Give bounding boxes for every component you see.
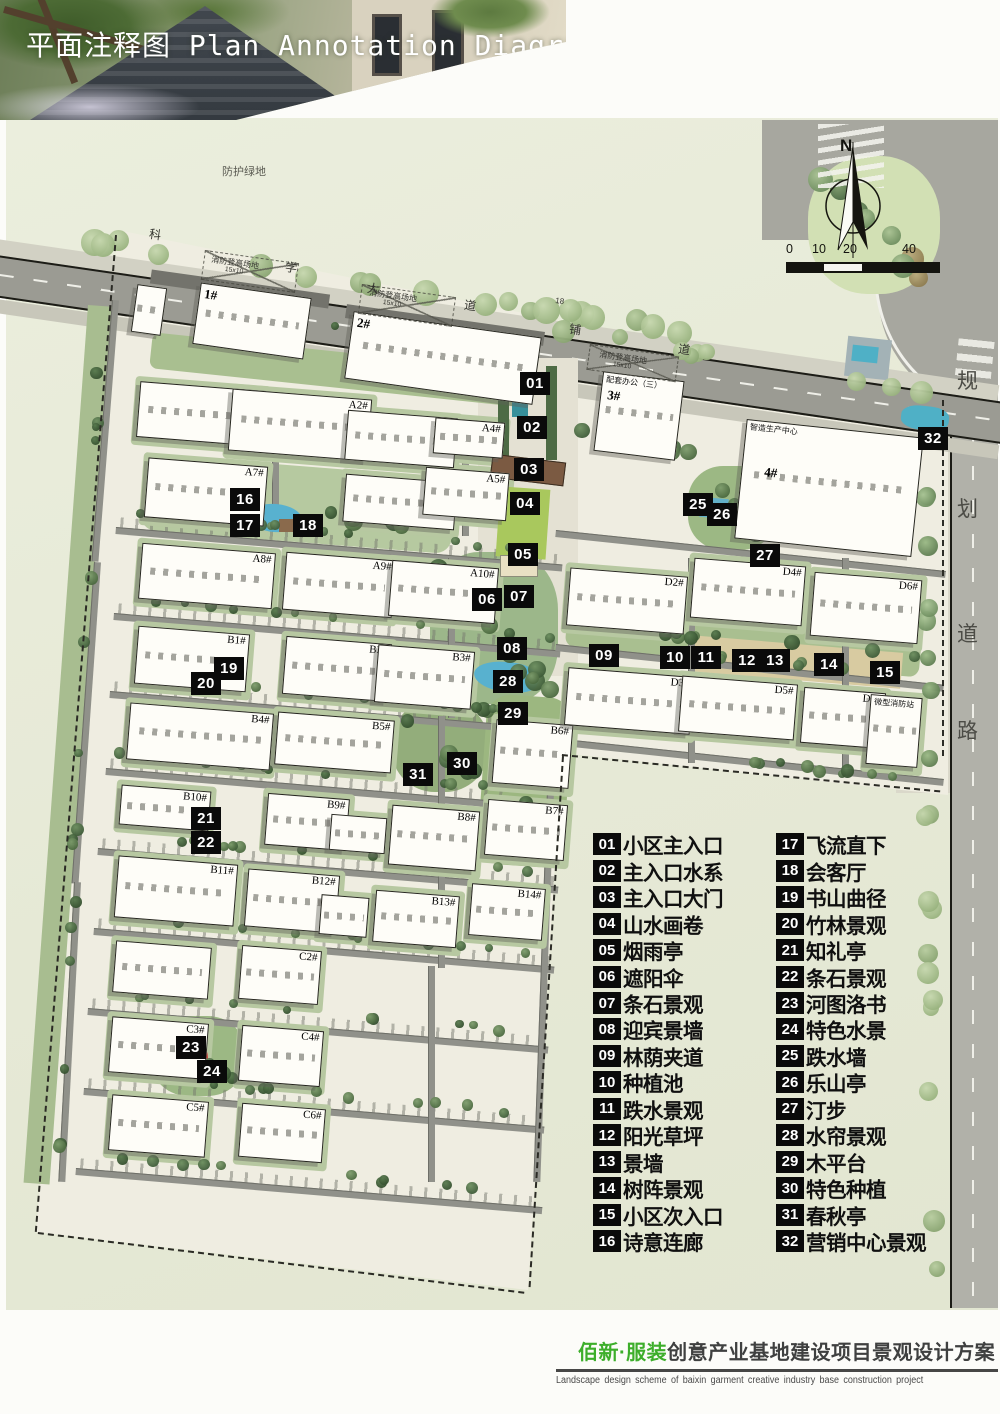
building-3: 配套办公（三）3# <box>593 371 684 460</box>
tree-icon <box>545 633 555 643</box>
planning-road <box>950 385 998 1308</box>
legend-item-15: 15小区次入口 <box>593 1204 748 1226</box>
tree-icon <box>916 808 934 826</box>
legend-number: 11 <box>593 1098 621 1120</box>
legend-number: 20 <box>776 913 804 935</box>
building-B13: B13# <box>372 890 460 948</box>
legend-number: 07 <box>593 992 621 1014</box>
building-windows <box>285 735 384 750</box>
tree-icon <box>114 747 126 759</box>
legend-number: 25 <box>776 1045 804 1067</box>
legend-item-26: 26乐山亭 <box>776 1071 926 1093</box>
site-boundary-east <box>942 400 944 756</box>
legend-item-27: 27汀步 <box>776 1098 926 1120</box>
tree-icon <box>921 750 938 767</box>
building-label: A4# <box>481 422 501 435</box>
page: N 0102040 01小区主入口02主入口水系03主入口大门04山水画卷05烟… <box>0 0 1000 1414</box>
legend-label: 诗意连廊 <box>623 1226 703 1256</box>
legend-number: 17 <box>776 833 804 855</box>
legend-item-10: 10种植池 <box>593 1071 748 1093</box>
building-label: B12# <box>311 875 336 889</box>
building-annex <box>329 814 388 854</box>
building-windows <box>476 906 538 918</box>
tree-icon <box>442 1180 452 1190</box>
tree-icon <box>413 1098 423 1108</box>
tree-icon <box>612 329 629 346</box>
tree-icon <box>379 1175 389 1185</box>
tree-icon <box>270 520 280 530</box>
tree-icon <box>198 1159 210 1171</box>
map-label: 规 <box>957 370 978 394</box>
building-windows <box>431 488 502 501</box>
building-C2: C2# <box>238 945 322 1005</box>
legend-number: 26 <box>776 1071 804 1093</box>
legend-number: 06 <box>593 966 621 988</box>
building-annex: 微型消防站 <box>865 694 922 768</box>
legend-item-30: 30特色种植 <box>776 1177 926 1199</box>
tree-icon <box>228 842 236 850</box>
legend-number: 15 <box>593 1204 621 1226</box>
legend-item-16: 16诗意连廊 <box>593 1230 748 1252</box>
building-label: B8# <box>457 811 476 824</box>
building-B4: B4# <box>126 702 274 770</box>
tree-icon <box>499 1108 509 1118</box>
building-label: 4# <box>763 464 778 481</box>
building-windows <box>121 963 202 976</box>
planning-road-centerline <box>972 398 974 1303</box>
tree-icon <box>574 423 590 439</box>
tree-icon <box>473 542 482 551</box>
legend-number: 10 <box>593 1071 621 1093</box>
legend-column-2: 17飞流直下18会客厅19书山曲径20竹林景观21知礼亭22条石景观23河图洛书… <box>776 833 926 1252</box>
building-windows <box>440 433 499 445</box>
legend-item-32: 32营销中心景观 <box>776 1230 926 1252</box>
building-windows <box>689 700 787 715</box>
legend-item-29: 29木平台 <box>776 1151 926 1173</box>
legend-number: 05 <box>593 939 621 961</box>
building-label: A7# <box>244 466 264 479</box>
legend-item-04: 04山水画卷 <box>593 912 748 934</box>
plan-marker-05: 05 <box>508 543 538 566</box>
building-A5: A5# <box>422 467 510 521</box>
tree-icon <box>469 1021 478 1030</box>
project-title-line: 佰新·服装 创意产业基地建设项目景观设计方案 <box>556 1336 998 1365</box>
tree-icon <box>321 770 329 778</box>
building-windows <box>246 968 313 980</box>
plan-marker-08: 08 <box>497 637 527 660</box>
legend-number: 18 <box>776 860 804 882</box>
tree-icon <box>366 1013 376 1023</box>
building-label: B11# <box>210 864 234 878</box>
tree-icon <box>53 1140 66 1153</box>
building-label: B3# <box>452 651 471 664</box>
tree-icon <box>229 999 238 1008</box>
tree-icon <box>784 635 800 651</box>
building-C6: C6# <box>238 1103 326 1163</box>
building-windows <box>576 692 683 707</box>
building-label: D4# <box>782 566 802 579</box>
plan-marker-27: 27 <box>750 544 780 567</box>
legend-number: 22 <box>776 966 804 988</box>
scale-bar-segments <box>786 262 940 273</box>
map-label: 路 <box>957 720 978 744</box>
plan-marker-18: 18 <box>293 514 323 537</box>
building-label: A8# <box>252 553 272 566</box>
legend-item-12: 12阳光草坪 <box>593 1124 748 1146</box>
tree-icon <box>918 536 939 557</box>
site-plan: N 0102040 01小区主入口02主入口水系03主入口大门04山水画卷05烟… <box>0 0 1000 1414</box>
project-subtitle-en: Landscape design scheme of baixin garmen… <box>556 1375 954 1386</box>
building-B8: B8# <box>388 805 480 872</box>
legend-number: 32 <box>776 1230 804 1252</box>
plan-marker-26: 26 <box>707 503 737 526</box>
tree-icon <box>793 660 804 671</box>
scale-tick: 40 <box>902 242 916 256</box>
plan-marker-14: 14 <box>814 653 844 676</box>
plan-marker-23: 23 <box>176 1036 206 1059</box>
building-label: 2# <box>356 315 371 333</box>
building-windows <box>701 584 796 598</box>
building-C5: C5# <box>108 1094 209 1157</box>
tree-icon <box>70 896 82 908</box>
building-label: B14# <box>517 888 542 902</box>
building-label: B4# <box>251 713 270 726</box>
building-windows <box>241 416 360 432</box>
tree-icon <box>455 1020 464 1029</box>
tree-icon <box>451 537 459 545</box>
tree-icon <box>445 778 457 790</box>
legend-label: 营销中心景观 <box>806 1226 926 1256</box>
building-label: A10# <box>470 567 495 581</box>
legend-item-31: 31春秋亭 <box>776 1204 926 1226</box>
tree-icon <box>311 1086 322 1097</box>
map-label: 道 <box>957 623 978 647</box>
title-divider <box>556 1369 998 1372</box>
building-D4: D4# <box>690 558 806 627</box>
map-label: 18 <box>555 296 565 306</box>
legend-item-23: 23河图洛书 <box>776 992 926 1014</box>
building-windows <box>125 882 227 897</box>
building-B14: B14# <box>468 883 546 941</box>
plan-marker-12: 12 <box>732 649 762 672</box>
building-A8: A8# <box>138 543 276 609</box>
map-label: 科 <box>148 228 162 243</box>
building-windows <box>292 577 385 591</box>
building-windows <box>397 830 471 843</box>
plan-marker-24: 24 <box>197 1060 227 1083</box>
tree-icon <box>474 293 497 316</box>
legend-column-1: 01小区主入口02主入口水系03主入口大门04山水画卷05烟雨亭06遮阳伞07条… <box>593 833 748 1252</box>
tree-icon <box>527 672 539 684</box>
plan-marker-06: 06 <box>472 588 502 611</box>
north-arrow: N <box>816 124 890 260</box>
legend-item-01: 01小区主入口 <box>593 833 748 855</box>
map-label: 划 <box>957 498 978 522</box>
tree-icon <box>801 760 814 773</box>
plan-marker-13: 13 <box>760 649 790 672</box>
tree-icon <box>466 1182 478 1194</box>
building-label: 1# <box>203 286 218 304</box>
building-windows <box>492 823 559 835</box>
legend-number: 08 <box>593 1018 621 1040</box>
legend-number: 21 <box>776 939 804 961</box>
legend-number: 04 <box>593 913 621 935</box>
building-windows <box>335 829 382 840</box>
legend: 01小区主入口02主入口水系03主入口大门04山水画卷05烟雨亭06遮阳伞07条… <box>593 833 926 1252</box>
legend-item-06: 06遮阳伞 <box>593 965 748 987</box>
tree-icon <box>909 651 919 661</box>
tree-icon <box>910 381 933 404</box>
map-label: 道 <box>463 299 477 314</box>
building-label: B1# <box>227 634 246 647</box>
tree-icon <box>923 990 943 1010</box>
project-title-block: 佰新·服装 创意产业基地建设项目景观设计方案 Landscape design … <box>556 1336 998 1386</box>
building-annex <box>319 894 370 938</box>
tree-icon <box>715 483 730 498</box>
legend-number: 16 <box>593 1230 621 1252</box>
tree-icon <box>65 922 77 934</box>
building-windows <box>137 305 162 315</box>
building-label: B7# <box>545 804 564 817</box>
map-label: 铺 <box>568 323 582 338</box>
plan-marker-09: 09 <box>589 644 619 667</box>
plan-marker-16: 16 <box>230 488 260 511</box>
tree-icon <box>499 292 518 311</box>
legend-number: 13 <box>593 1151 621 1173</box>
building-label: C4# <box>301 1031 320 1044</box>
building-label: B10# <box>183 790 208 804</box>
building-label: C5# <box>186 1101 205 1114</box>
legend-number: 12 <box>593 1124 621 1146</box>
plan-marker-28: 28 <box>493 670 523 693</box>
legend-item-25: 25跌水墙 <box>776 1045 926 1067</box>
tree-icon <box>698 344 714 360</box>
building-windows <box>820 599 911 613</box>
plan-marker-31: 31 <box>403 763 433 786</box>
internal-road <box>428 966 435 1182</box>
building-label: A9# <box>372 560 392 573</box>
building-D5: D5# <box>678 676 798 741</box>
plan-marker-04: 04 <box>510 492 540 515</box>
plan-marker-22: 22 <box>191 831 221 854</box>
tree-icon <box>401 714 415 728</box>
tree-icon <box>485 944 494 953</box>
building-windows <box>292 661 382 675</box>
scale-tick: 0 <box>786 242 793 256</box>
tree-icon <box>60 1064 70 1074</box>
legend-item-05: 05烟雨亭 <box>593 939 748 961</box>
legend-number: 28 <box>776 1124 804 1146</box>
building-windows <box>205 310 300 330</box>
scale-tick: 20 <box>843 242 857 256</box>
legend-item-17: 17飞流直下 <box>776 833 926 855</box>
tree-icon <box>271 607 282 618</box>
building-4: 智造生产中心4# <box>734 419 924 557</box>
project-title: 创意产业基地建设项目景观设计方案 <box>667 1336 995 1365</box>
building-D3: D3# <box>564 667 694 735</box>
plan-marker-03: 03 <box>514 458 544 481</box>
legend-number: 03 <box>593 886 621 908</box>
plan-marker-29: 29 <box>498 702 528 725</box>
building-label: B5# <box>372 720 391 733</box>
building-label: 3# <box>606 387 621 404</box>
tree-icon <box>541 681 559 699</box>
tree-icon <box>329 613 338 622</box>
building-label: B6# <box>550 724 569 737</box>
legend-item-09: 09林荫夹道 <box>593 1045 748 1067</box>
tree-icon <box>776 758 785 767</box>
building-windows <box>363 342 524 371</box>
building-windows <box>139 727 261 744</box>
legend-number: 31 <box>776 1204 804 1226</box>
tree-icon <box>216 1161 226 1171</box>
legend-number: 29 <box>776 1151 804 1173</box>
building-windows <box>605 406 674 421</box>
tree-icon <box>580 305 605 330</box>
building-label: A5# <box>486 473 506 486</box>
brand-name: 佰新·服装 <box>578 1336 667 1365</box>
tree-icon <box>344 529 353 538</box>
plan-marker-17: 17 <box>230 514 260 537</box>
building-windows <box>384 669 466 682</box>
legend-item-03: 03主入口大门 <box>593 886 748 908</box>
building-windows <box>150 567 264 583</box>
plan-marker-20: 20 <box>191 672 221 695</box>
building-windows <box>253 893 331 906</box>
legend-number: 02 <box>593 860 621 882</box>
scale-bar: 0102040 <box>786 242 956 288</box>
map-label: 防护绿地 <box>222 166 266 179</box>
building-A4: A4# <box>433 417 506 458</box>
plan-marker-02: 02 <box>517 416 547 439</box>
plan-marker-01: 01 <box>520 372 550 395</box>
plan-marker-32: 32 <box>918 427 948 450</box>
building-label: B13# <box>431 895 456 909</box>
legend-item-20: 20竹林景观 <box>776 912 926 934</box>
building-label: B9# <box>327 799 346 812</box>
building-annex <box>112 940 212 999</box>
building-label: C6# <box>303 1109 322 1122</box>
building-windows <box>500 747 565 759</box>
plan-marker-21: 21 <box>191 807 221 830</box>
tree-icon <box>430 1097 441 1108</box>
building-label: D6# <box>898 580 918 593</box>
building-sublabel: 智造生产中心 <box>749 422 798 436</box>
legend-item-14: 14树阵景观 <box>593 1177 748 1199</box>
legend-item-07: 07条石景观 <box>593 992 748 1014</box>
legend-number: 09 <box>593 1045 621 1067</box>
plan-marker-07: 07 <box>504 585 534 608</box>
building-windows <box>246 1049 315 1061</box>
tree-icon <box>847 372 866 391</box>
building-D6: D6# <box>810 572 923 644</box>
map-label: 学 <box>284 261 298 276</box>
legend-item-21: 21知礼亭 <box>776 939 926 961</box>
legend-number: 27 <box>776 1098 804 1120</box>
building-C4: C4# <box>238 1025 324 1087</box>
tree-icon <box>90 367 103 380</box>
plan-marker-15: 15 <box>870 661 900 684</box>
tree-icon <box>462 1099 474 1111</box>
plan-marker-10: 10 <box>660 646 690 669</box>
building-windows <box>381 912 452 925</box>
legend-number: 24 <box>776 1018 804 1040</box>
building-windows <box>118 1118 200 1131</box>
building-windows <box>324 911 364 921</box>
legend-item-11: 11跌水景观 <box>593 1098 748 1120</box>
building-windows <box>808 711 877 723</box>
legend-item-28: 28水帘景观 <box>776 1124 926 1146</box>
tree-icon <box>923 1210 945 1232</box>
legend-number: 14 <box>593 1177 621 1199</box>
legend-number: 30 <box>776 1177 804 1199</box>
legend-item-08: 08迎宾景墙 <box>593 1018 748 1040</box>
legend-number: 23 <box>776 992 804 1014</box>
building-windows <box>577 593 677 608</box>
legend-item-24: 24特色水景 <box>776 1018 926 1040</box>
tree-icon <box>882 378 901 397</box>
pool-32 <box>851 345 879 364</box>
legend-item-13: 13景墙 <box>593 1151 748 1173</box>
legend-number: 19 <box>776 886 804 908</box>
plan-marker-11: 11 <box>691 646 721 669</box>
legend-number: 01 <box>593 833 621 855</box>
building-label: C3# <box>186 1023 205 1036</box>
building-windows <box>247 1126 318 1139</box>
legend-item-18: 18会客厅 <box>776 859 926 881</box>
legend-item-19: 19书山曲径 <box>776 886 926 908</box>
tree-icon <box>680 444 696 460</box>
tree-icon <box>920 650 936 666</box>
tree-icon <box>867 769 877 779</box>
building-B3: B3# <box>374 644 475 709</box>
legend-item-02: 02主入口水系 <box>593 859 748 881</box>
building-label: D5# <box>774 684 794 697</box>
building-label: C2# <box>299 950 318 963</box>
building-A9: A9# <box>282 552 396 618</box>
tree-icon <box>929 1261 945 1277</box>
tree-icon <box>177 1159 189 1171</box>
tree-icon <box>147 1155 159 1167</box>
tree-icon <box>916 489 934 507</box>
building-D2: D2# <box>566 567 688 634</box>
building-windows <box>872 724 915 734</box>
plan-marker-30: 30 <box>447 752 477 775</box>
scale-tick: 10 <box>812 242 826 256</box>
map-label: 道 <box>677 343 691 358</box>
building-sublabel: 微型消防站 <box>874 697 915 709</box>
tree-icon <box>251 682 261 692</box>
tree-icon <box>641 314 666 339</box>
building-B11: B11# <box>114 855 238 926</box>
building-label: D2# <box>664 576 684 589</box>
legend-item-22: 22条石景观 <box>776 965 926 987</box>
building-B5: B5# <box>274 711 395 773</box>
